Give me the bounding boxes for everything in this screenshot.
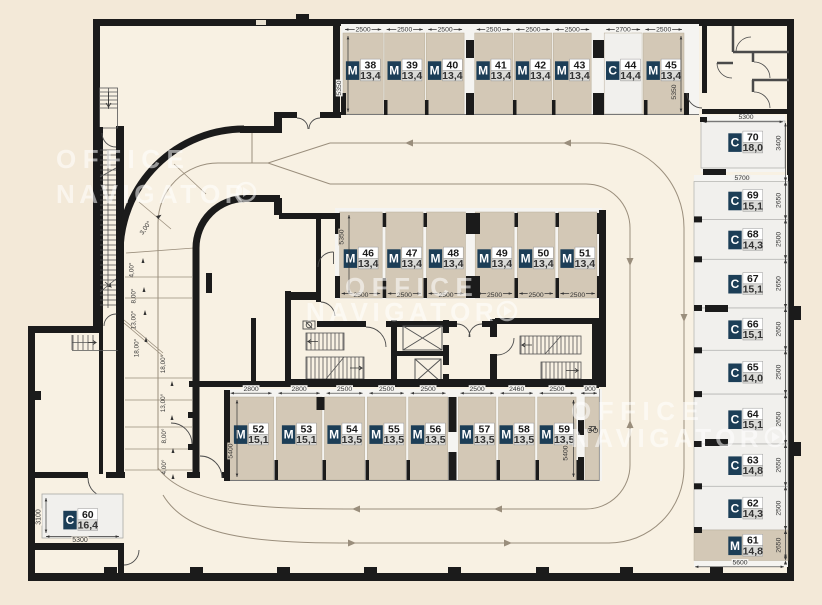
svg-text:13,5: 13,5	[514, 434, 535, 446]
svg-text:13,4: 13,4	[443, 258, 464, 270]
svg-text:13,5: 13,5	[384, 434, 405, 446]
svg-text:M: M	[430, 64, 440, 78]
svg-text:C: C	[66, 513, 75, 527]
svg-text:14,3: 14,3	[743, 508, 764, 520]
svg-text:2500: 2500	[379, 386, 394, 393]
svg-text:2650: 2650	[776, 276, 783, 291]
svg-text:C: C	[731, 194, 740, 208]
svg-text:M: M	[348, 64, 358, 78]
svg-text:5400: 5400	[563, 445, 570, 460]
svg-text:14,0: 14,0	[743, 372, 764, 384]
svg-text:M: M	[389, 252, 399, 266]
svg-text:13,4: 13,4	[575, 258, 596, 270]
svg-text:15,1: 15,1	[296, 434, 317, 446]
svg-text:NAVIGATOR: NAVIGATOR	[56, 179, 248, 209]
svg-text:2500: 2500	[337, 386, 352, 393]
svg-text:13,5: 13,5	[342, 434, 363, 446]
svg-text:C: C	[731, 136, 740, 150]
svg-text:2500: 2500	[525, 27, 540, 34]
svg-text:M: M	[345, 252, 355, 266]
svg-text:M: M	[648, 64, 658, 78]
svg-text:13,4: 13,4	[491, 70, 512, 82]
svg-text:15,1: 15,1	[248, 434, 269, 446]
svg-text:M: M	[389, 64, 399, 78]
svg-text:5350: 5350	[671, 84, 678, 99]
svg-text:2500: 2500	[776, 364, 783, 379]
svg-text:2700: 2700	[616, 27, 631, 34]
svg-text:M: M	[730, 539, 740, 553]
svg-text:2650: 2650	[776, 411, 783, 426]
svg-text:2650: 2650	[776, 457, 783, 472]
svg-text:13,00°: 13,00°	[159, 393, 167, 412]
svg-text:5350: 5350	[336, 80, 343, 95]
svg-text:2500: 2500	[438, 27, 453, 34]
svg-text:15,1: 15,1	[743, 284, 764, 296]
svg-text:2500: 2500	[776, 500, 783, 515]
svg-text:8,00°: 8,00°	[160, 428, 168, 443]
svg-text:18,0: 18,0	[743, 142, 764, 154]
svg-text:C: C	[731, 233, 740, 247]
svg-text:2500: 2500	[776, 232, 783, 247]
svg-text:2650: 2650	[776, 537, 783, 552]
svg-text:M: M	[371, 428, 381, 442]
svg-text:C: C	[731, 502, 740, 516]
svg-text:2800: 2800	[244, 386, 259, 393]
svg-text:14,8: 14,8	[743, 545, 764, 557]
svg-text:M: M	[431, 252, 441, 266]
svg-text:OFFICE: OFFICE	[56, 144, 190, 174]
svg-text:2500: 2500	[356, 27, 371, 34]
svg-text:3100: 3100	[36, 509, 43, 525]
svg-text:C: C	[731, 459, 740, 473]
svg-text:4,00°: 4,00°	[128, 262, 136, 277]
svg-text:M: M	[284, 428, 294, 442]
svg-text:14,3: 14,3	[743, 240, 764, 252]
svg-text:5400: 5400	[228, 443, 235, 458]
svg-text:2500: 2500	[397, 27, 412, 34]
svg-text:M: M	[501, 428, 511, 442]
svg-text:NAVIGATOR: NAVIGATOR	[571, 423, 763, 453]
svg-text:13,4: 13,4	[358, 258, 379, 270]
svg-text:13,5: 13,5	[474, 434, 495, 446]
svg-text:C: C	[731, 323, 740, 337]
svg-text:13,4: 13,4	[401, 258, 422, 270]
svg-text:13,4: 13,4	[442, 70, 463, 82]
svg-text:M: M	[562, 252, 572, 266]
svg-text:13,4: 13,4	[533, 258, 554, 270]
svg-text:2500: 2500	[421, 386, 436, 393]
svg-text:M: M	[521, 252, 531, 266]
svg-text:OFFICE: OFFICE	[571, 396, 705, 426]
svg-text:2500: 2500	[529, 292, 544, 299]
svg-text:M: M	[557, 64, 567, 78]
svg-text:2500: 2500	[549, 386, 564, 393]
svg-text:13,4: 13,4	[360, 70, 381, 82]
svg-text:18,00°: 18,00°	[159, 354, 167, 373]
svg-text:2500: 2500	[470, 386, 485, 393]
svg-text:2460: 2460	[509, 386, 524, 393]
svg-text:13,4: 13,4	[492, 258, 513, 270]
svg-text:M: M	[518, 64, 528, 78]
svg-text:15,1: 15,1	[743, 329, 764, 341]
svg-text:900: 900	[584, 386, 596, 393]
svg-text:M: M	[329, 428, 339, 442]
svg-text:5350: 5350	[339, 229, 346, 244]
svg-text:5600: 5600	[732, 560, 747, 567]
svg-text:M: M	[413, 428, 423, 442]
svg-text:M: M	[478, 64, 488, 78]
svg-text:NAVIGATOR: NAVIGATOR	[306, 297, 498, 327]
svg-text:C: C	[608, 64, 617, 78]
svg-text:13,4: 13,4	[569, 70, 590, 82]
svg-text:14,8: 14,8	[743, 465, 764, 477]
svg-text:13,5: 13,5	[425, 434, 446, 446]
svg-text:2500: 2500	[565, 27, 580, 34]
svg-text:2800: 2800	[292, 386, 307, 393]
svg-text:2650: 2650	[776, 321, 783, 336]
svg-text:16,4: 16,4	[78, 520, 99, 532]
svg-text:2500: 2500	[656, 27, 671, 34]
svg-text:C: C	[731, 277, 740, 291]
svg-text:13,4: 13,4	[530, 70, 551, 82]
svg-text:M: M	[462, 428, 472, 442]
svg-text:13,4: 13,4	[661, 70, 682, 82]
svg-text:4,00°: 4,00°	[160, 459, 168, 474]
svg-text:3400: 3400	[776, 135, 783, 150]
svg-text:M: M	[541, 428, 551, 442]
svg-text:15,1: 15,1	[743, 201, 764, 213]
svg-text:5700: 5700	[734, 175, 749, 182]
svg-text:2650: 2650	[776, 193, 783, 208]
svg-text:14,4: 14,4	[620, 70, 641, 82]
svg-text:8,00°: 8,00°	[130, 288, 138, 303]
svg-text:2500: 2500	[570, 292, 585, 299]
svg-text:18,00°: 18,00°	[133, 338, 141, 357]
svg-text:C: C	[731, 366, 740, 380]
svg-text:13,00°: 13,00°	[130, 310, 138, 329]
svg-text:5300: 5300	[738, 114, 753, 121]
svg-text:13,4: 13,4	[402, 70, 423, 82]
svg-text:M: M	[479, 252, 489, 266]
svg-text:2500: 2500	[486, 27, 501, 34]
